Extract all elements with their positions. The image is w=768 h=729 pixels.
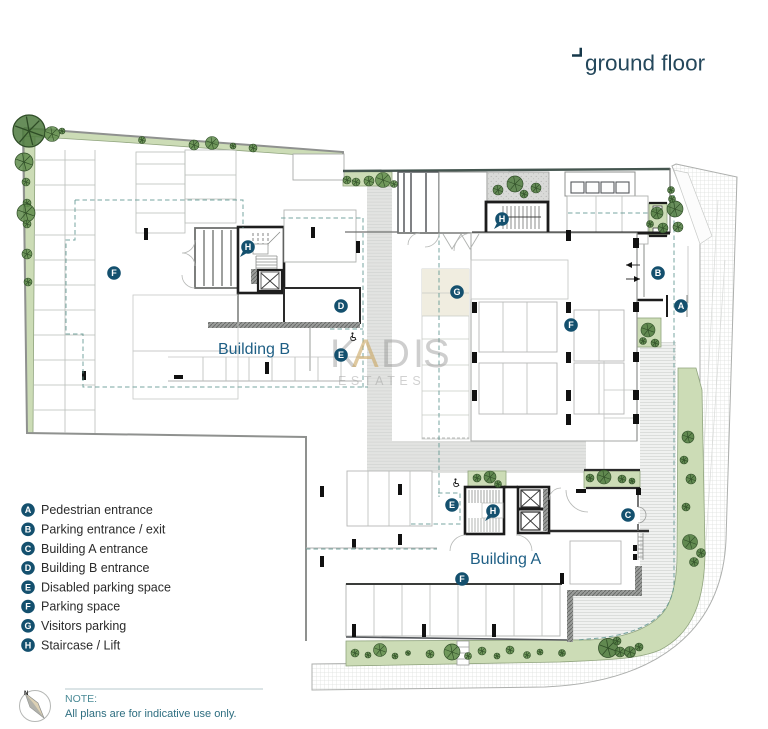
svg-text:G: G — [453, 287, 460, 297]
svg-text:B: B — [25, 525, 32, 535]
svg-text:Building B: Building B — [218, 341, 290, 358]
svg-text:S: S — [423, 332, 450, 376]
svg-text:Pedestrian entrance: Pedestrian entrance — [41, 503, 153, 517]
svg-text:E: E — [338, 350, 344, 360]
svg-text:C: C — [625, 510, 632, 520]
svg-text:Parking entrance / exit: Parking entrance / exit — [41, 523, 166, 537]
svg-text:E: E — [449, 500, 455, 510]
svg-text:F: F — [459, 574, 465, 584]
svg-text:Building B entrance: Building B entrance — [41, 561, 149, 575]
svg-text:H: H — [25, 640, 32, 650]
svg-text:F: F — [25, 602, 31, 612]
svg-text:C: C — [25, 544, 32, 554]
svg-text:Parking space: Parking space — [41, 600, 120, 614]
svg-text:ground floor: ground floor — [585, 51, 706, 76]
svg-text:Building A entrance: Building A entrance — [41, 542, 148, 556]
svg-text:Disabled parking space: Disabled parking space — [41, 580, 171, 594]
svg-text:A: A — [352, 332, 379, 376]
svg-text:N: N — [24, 691, 28, 697]
svg-text:D: D — [338, 301, 345, 311]
svg-text:F: F — [568, 320, 574, 330]
svg-text:NOTE:: NOTE: — [65, 693, 97, 705]
svg-text:A: A — [678, 301, 685, 311]
svg-text:A: A — [25, 505, 32, 515]
svg-text:E: E — [25, 582, 31, 592]
svg-text:All plans are for indicative u: All plans are for indicative use only. — [65, 708, 237, 720]
svg-text:Visitors parking: Visitors parking — [41, 619, 126, 633]
svg-text:D: D — [381, 332, 410, 376]
svg-text:B: B — [655, 268, 662, 278]
svg-text:ESTATES: ESTATES — [338, 374, 425, 388]
svg-text:H: H — [490, 506, 497, 516]
svg-text:Building A: Building A — [470, 551, 541, 568]
svg-text:H: H — [499, 214, 506, 224]
svg-text:D: D — [25, 563, 32, 573]
svg-text:G: G — [24, 621, 31, 631]
svg-text:Staircase / Lift: Staircase / Lift — [41, 638, 121, 652]
svg-text:H: H — [245, 242, 252, 252]
svg-text:F: F — [111, 268, 117, 278]
